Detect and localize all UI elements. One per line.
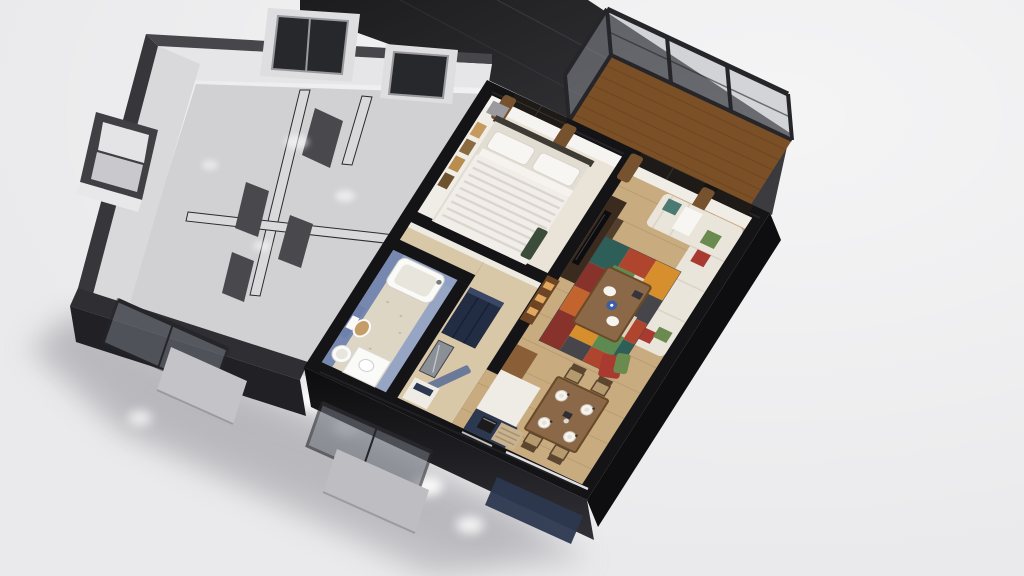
gray-window-top-2 xyxy=(380,44,458,104)
light-patch xyxy=(202,160,218,170)
render-viewport[interactable] xyxy=(0,0,1024,576)
light-patch xyxy=(285,135,309,149)
light-patch xyxy=(456,516,484,534)
light-patch xyxy=(335,190,355,202)
apartment-3d-dollhouse-view[interactable] xyxy=(0,0,1024,576)
light-patch xyxy=(128,410,152,426)
light-patch xyxy=(253,241,271,251)
window-glass xyxy=(389,52,448,98)
gray-window-top-1 xyxy=(260,8,360,82)
